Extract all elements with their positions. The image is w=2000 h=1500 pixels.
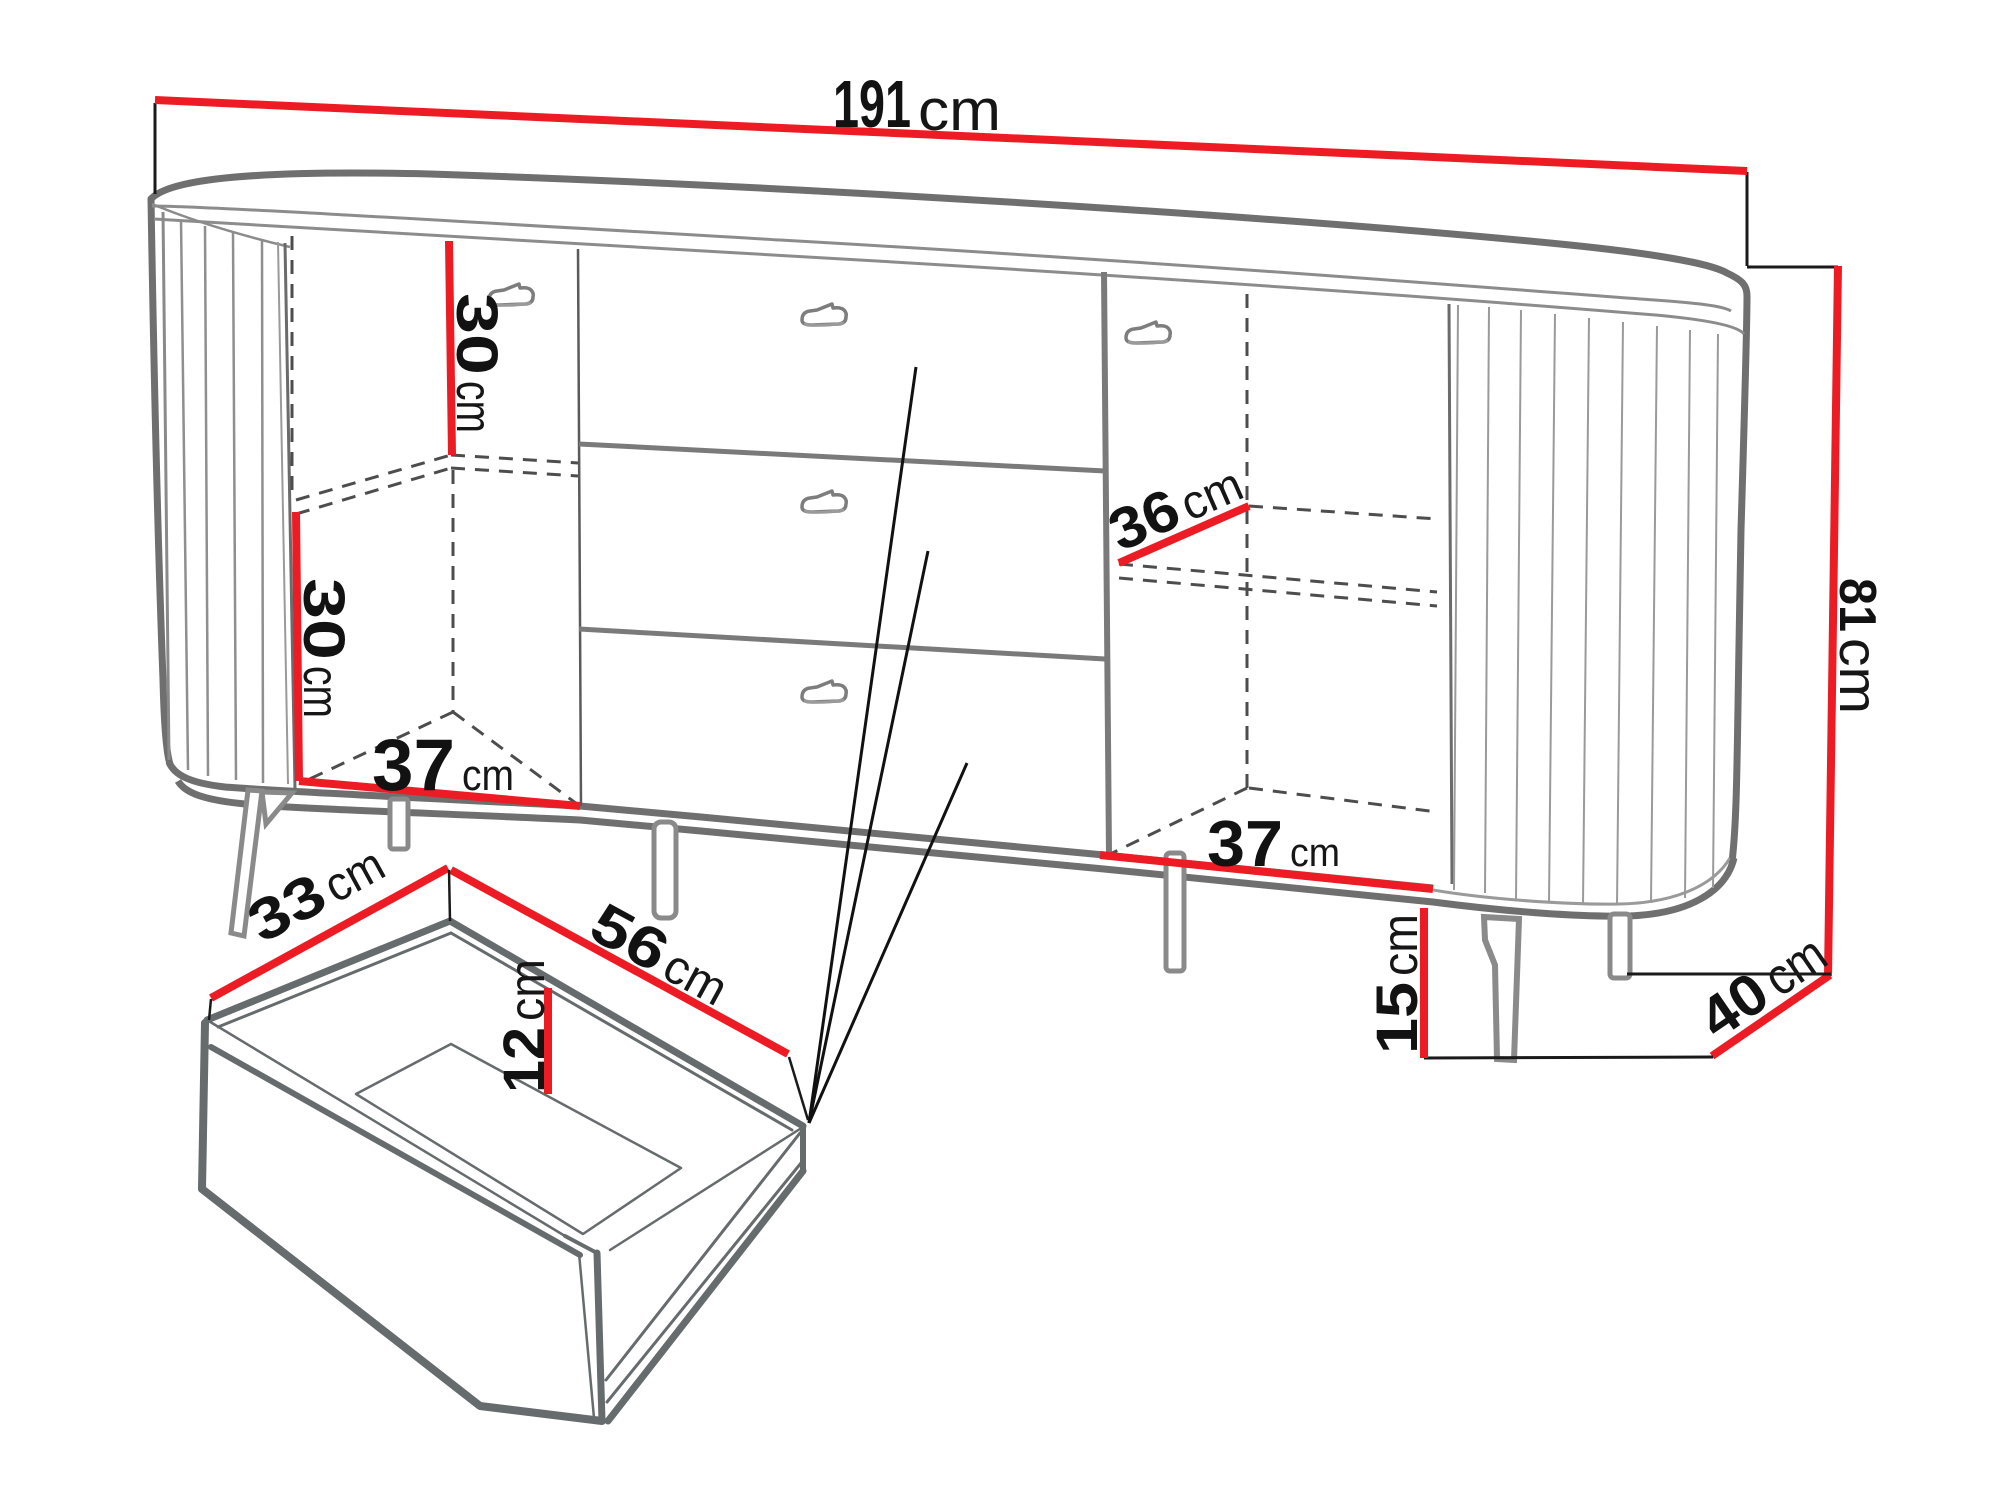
svg-text:191: 191 (833, 67, 911, 142)
svg-text:cm: cm (918, 78, 1001, 143)
svg-text:cm: cm (1290, 831, 1340, 875)
svg-text:cm: cm (1372, 914, 1428, 976)
svg-text:cm: cm (446, 381, 502, 433)
svg-text:15: 15 (1365, 982, 1430, 1054)
svg-text:30: 30 (291, 578, 356, 660)
svg-text:cm: cm (293, 666, 349, 718)
svg-text:37: 37 (372, 725, 455, 806)
svg-text:12: 12 (492, 1027, 557, 1093)
svg-text:37: 37 (1207, 807, 1283, 880)
svg-text:cm: cm (499, 959, 555, 1021)
svg-text:30: 30 (444, 293, 509, 375)
svg-text:cm: cm (1173, 458, 1251, 531)
svg-text:81: 81 (1828, 578, 1886, 632)
svg-text:cm: cm (1828, 638, 1888, 714)
svg-text:cm: cm (462, 751, 514, 800)
svg-text:cm: cm (654, 939, 736, 1016)
